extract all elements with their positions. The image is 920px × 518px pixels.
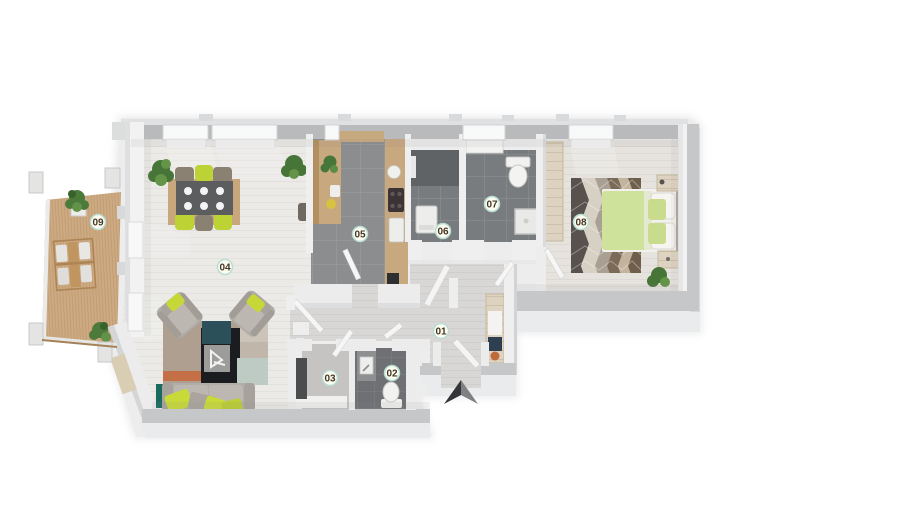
svg-text:04: 04 (219, 263, 231, 274)
svg-text:02: 02 (386, 369, 398, 380)
svg-text:01: 01 (435, 327, 447, 338)
svg-text:05: 05 (354, 230, 366, 241)
svg-text:06: 06 (437, 227, 449, 238)
svg-text:03: 03 (324, 374, 336, 385)
svg-text:09: 09 (92, 218, 104, 229)
svg-text:08: 08 (575, 218, 587, 229)
svg-text:07: 07 (486, 200, 498, 211)
